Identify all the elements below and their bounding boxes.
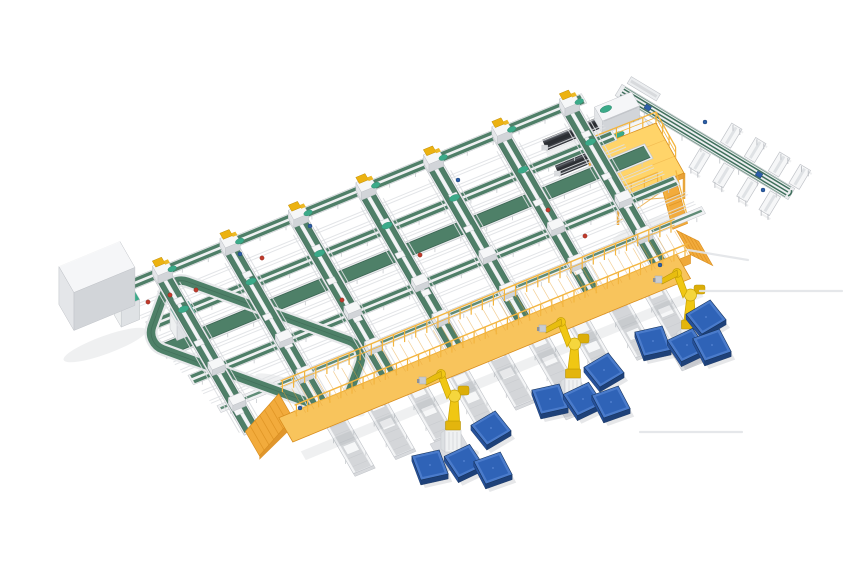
factory-3d-render: Isometric 3D render of an automated parc… bbox=[0, 0, 860, 580]
discharge-chute bbox=[737, 177, 759, 206]
discharge-chute bbox=[689, 148, 711, 177]
discharge-chute bbox=[789, 164, 812, 189]
discharge-chute bbox=[744, 138, 767, 163]
discharge-chute bbox=[759, 191, 781, 220]
pallet bbox=[592, 386, 634, 426]
discharge-chute bbox=[713, 163, 735, 192]
discharge-chute bbox=[768, 152, 791, 177]
pallet bbox=[474, 452, 516, 492]
discharge-chute bbox=[720, 123, 743, 148]
render-stage: Isometric 3D render of an automated parc… bbox=[0, 0, 860, 580]
